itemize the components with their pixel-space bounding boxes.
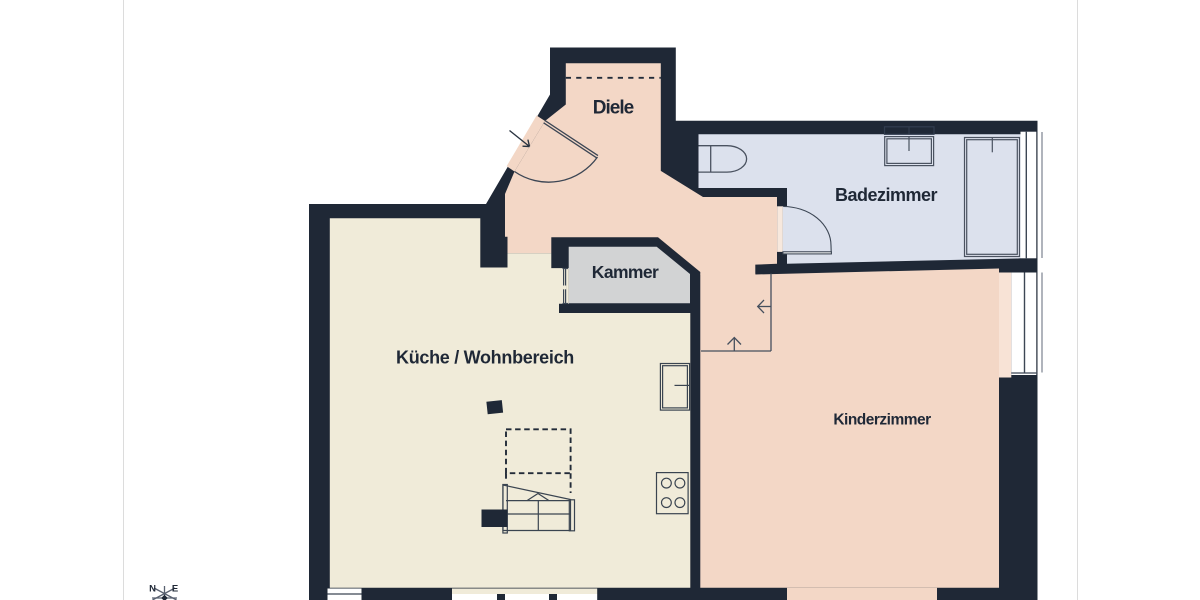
svg-text:Küche / Wohnbereich: Küche / Wohnbereich <box>396 348 574 368</box>
svg-text:Badezimmer: Badezimmer <box>835 185 938 205</box>
svg-text:Kammer: Kammer <box>592 262 659 282</box>
svg-text:E: E <box>172 584 178 595</box>
svg-text:N: N <box>149 584 156 595</box>
svg-text:Kinderzimmer: Kinderzimmer <box>833 412 931 429</box>
svg-text:Diele: Diele <box>593 98 634 119</box>
